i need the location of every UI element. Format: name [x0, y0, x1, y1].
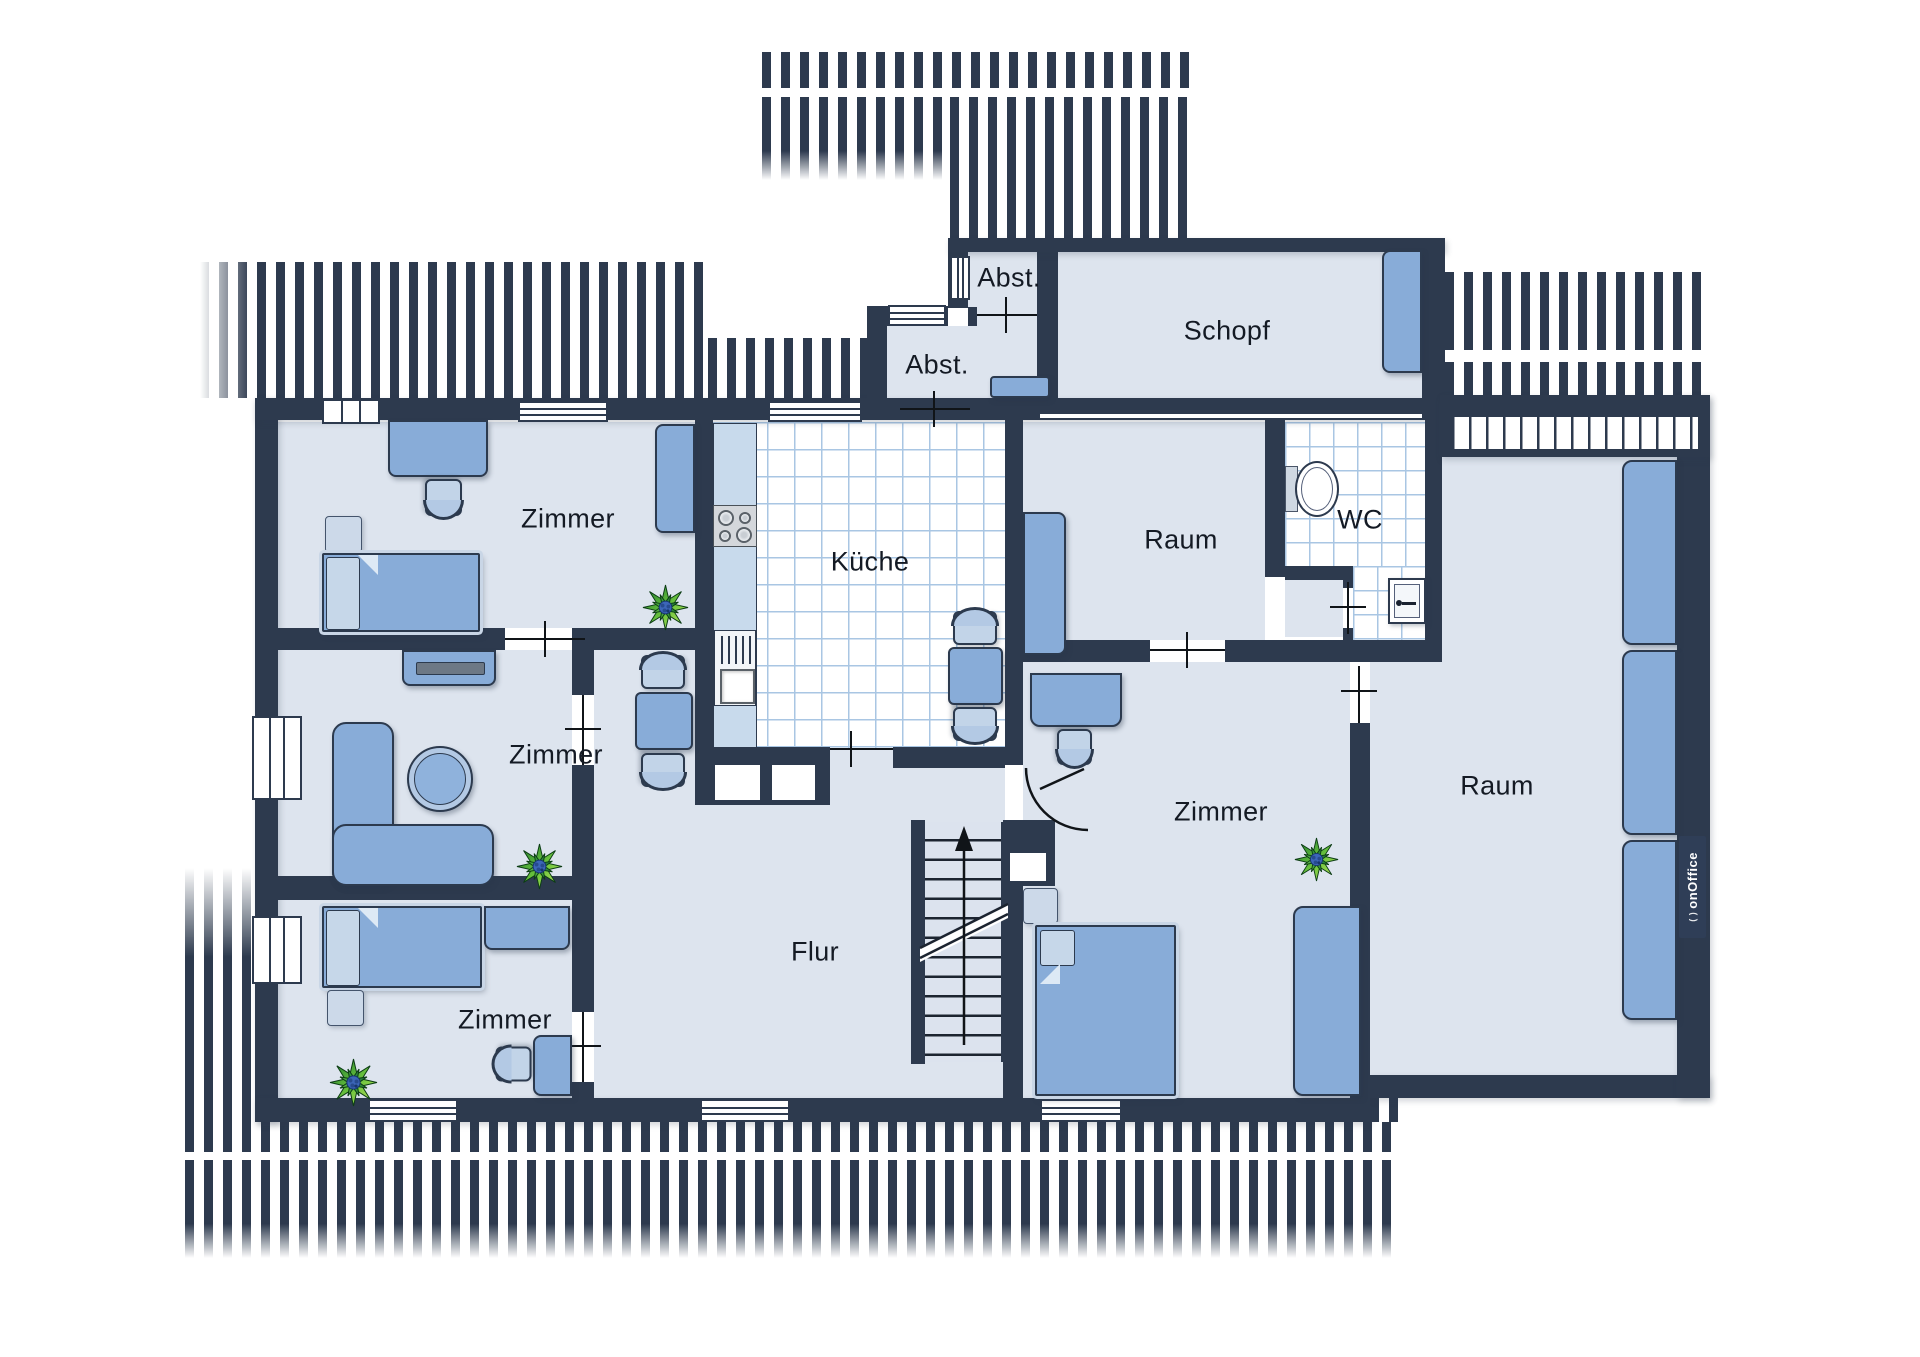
- room-label-raum-middle: Raum: [1144, 525, 1218, 556]
- toilet-bowl: [1295, 461, 1339, 517]
- washbasin: [1388, 578, 1426, 624]
- wardrobe: [1622, 840, 1677, 1020]
- room-label-zimmer-top-left: Zimmer: [521, 504, 615, 535]
- roof-hatch: [1445, 362, 1710, 395]
- sideboard: [402, 650, 496, 686]
- roof-hatch: [950, 97, 1192, 238]
- chair: [425, 479, 462, 516]
- door-tick: [1341, 690, 1377, 692]
- pillow: [326, 557, 360, 630]
- wall: [1422, 238, 1445, 420]
- desk: [533, 1035, 572, 1096]
- chair: [496, 1047, 532, 1082]
- blanket-fold: [358, 555, 378, 575]
- sink-basin: [720, 669, 755, 704]
- stove-burner: [719, 530, 731, 542]
- wardrobe: [1023, 512, 1066, 655]
- roof-slope-line: [1040, 414, 1445, 418]
- bed: [1035, 925, 1176, 1096]
- wardrobe: [1622, 650, 1677, 835]
- room-label-schopf: Schopf: [1184, 316, 1270, 347]
- window: [252, 916, 302, 984]
- wall: [1265, 420, 1285, 577]
- nightstand: [1023, 888, 1058, 924]
- door-tick: [933, 391, 935, 427]
- wall: [911, 820, 925, 1064]
- onoffice-logo-icon: ( ): [1688, 912, 1698, 922]
- roof-hatch: [185, 868, 258, 1122]
- pillow: [326, 910, 360, 986]
- desk: [388, 420, 488, 477]
- wall: [1225, 640, 1442, 662]
- pillow: [1040, 930, 1075, 966]
- door-tick: [1330, 606, 1366, 608]
- nightstand: [327, 990, 364, 1026]
- room-floor: [1285, 580, 1343, 637]
- door-tick: [565, 728, 601, 730]
- window: [252, 716, 302, 800]
- wardrobe: [1622, 460, 1677, 645]
- shaft: [772, 765, 815, 800]
- room-label-zimmer-right: Zimmer: [1174, 797, 1268, 828]
- wardrobe: [1382, 250, 1422, 373]
- room-label-zimmer-middle-left: Zimmer: [509, 740, 603, 771]
- shaft: [715, 765, 760, 800]
- room-label-wc: WC: [1337, 505, 1383, 536]
- room-label-flur: Flur: [791, 937, 839, 968]
- stove-burner: [718, 510, 734, 526]
- door-tick: [850, 731, 852, 767]
- room-label-zimmer-bottom-left: Zimmer: [458, 1005, 552, 1036]
- wall: [572, 765, 594, 1012]
- roof-hatch: [200, 262, 708, 398]
- roof-hatch: [708, 338, 867, 398]
- window: [322, 399, 380, 424]
- floorplan-canvas: Abst. Abst. Schopf Zimmer Küche Raum WC …: [0, 0, 1920, 1357]
- wall: [968, 307, 977, 326]
- dining-table: [635, 692, 693, 750]
- wall: [695, 398, 713, 768]
- roof-hatch: [185, 1160, 1400, 1258]
- door-opening: [1358, 666, 1360, 723]
- coffee-table-top: [414, 753, 466, 805]
- chair: [953, 707, 997, 741]
- wardrobe: [1293, 906, 1361, 1096]
- stove: [713, 505, 757, 547]
- roof-slope-strip: [1452, 417, 1698, 449]
- window: [888, 305, 946, 326]
- chair: [641, 753, 685, 787]
- bed: [322, 553, 480, 632]
- blanket-fold: [1040, 964, 1060, 984]
- wall: [1370, 1075, 1710, 1098]
- wall: [1003, 885, 1023, 1098]
- onoffice-brand-text: onOffice: [1685, 852, 1700, 909]
- window: [518, 401, 608, 422]
- door-tick: [544, 621, 546, 657]
- stove-burner: [736, 527, 752, 543]
- room-label-kueche: Küche: [831, 547, 910, 578]
- kitchen-sink: [714, 630, 756, 706]
- stove-burner: [739, 512, 751, 524]
- roof-hatch: [762, 97, 950, 180]
- roof-hatch: [1445, 272, 1710, 350]
- door-opening: [830, 748, 893, 750]
- nightstand: [325, 516, 362, 553]
- door-tick: [1005, 297, 1007, 333]
- wall: [572, 1082, 594, 1098]
- tv: [416, 662, 485, 675]
- wall: [1677, 395, 1710, 1098]
- toilet-bowl-inner: [1301, 467, 1333, 511]
- wardrobe: [655, 424, 695, 533]
- wall: [948, 238, 1445, 252]
- wall-niche: [1010, 853, 1046, 881]
- window: [768, 401, 862, 422]
- staircase: [925, 822, 1003, 1062]
- wall: [1285, 566, 1353, 580]
- window: [700, 1099, 790, 1122]
- wardrobe: [484, 906, 570, 950]
- room-label-abst-lower: Abst.: [905, 350, 969, 381]
- window: [1040, 1099, 1122, 1122]
- wall: [585, 628, 713, 650]
- onoffice-watermark: ( ) onOffice: [1679, 836, 1706, 938]
- window: [950, 256, 970, 300]
- roof-hatch: [762, 52, 1192, 88]
- door-tick: [1186, 632, 1188, 668]
- room-label-raum-right: Raum: [1460, 771, 1534, 802]
- dining-table: [948, 647, 1003, 705]
- room-label-abst-upper: Abst.: [977, 263, 1041, 294]
- sofa: [332, 824, 494, 886]
- bed: [322, 906, 482, 988]
- chair: [953, 611, 997, 645]
- wall: [893, 747, 1005, 768]
- coffee-table: [407, 746, 473, 812]
- sink-drainer: [721, 636, 751, 664]
- roof-hatch: [185, 1122, 1400, 1152]
- chair: [1057, 729, 1092, 765]
- shelf: [990, 376, 1050, 398]
- blanket-fold: [358, 908, 378, 928]
- wall: [1005, 398, 1023, 765]
- desk: [1030, 673, 1122, 727]
- roof-hatch: [1370, 1098, 1400, 1122]
- chair: [641, 655, 685, 689]
- faucet-icon: [1402, 602, 1416, 605]
- window: [368, 1099, 458, 1122]
